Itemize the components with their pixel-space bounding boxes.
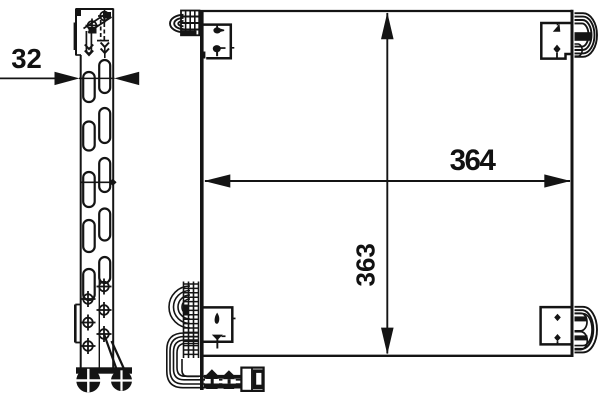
svg-text:363: 363 [351, 243, 381, 286]
svg-text:32: 32 [11, 43, 42, 74]
svg-text:364: 364 [450, 144, 497, 177]
